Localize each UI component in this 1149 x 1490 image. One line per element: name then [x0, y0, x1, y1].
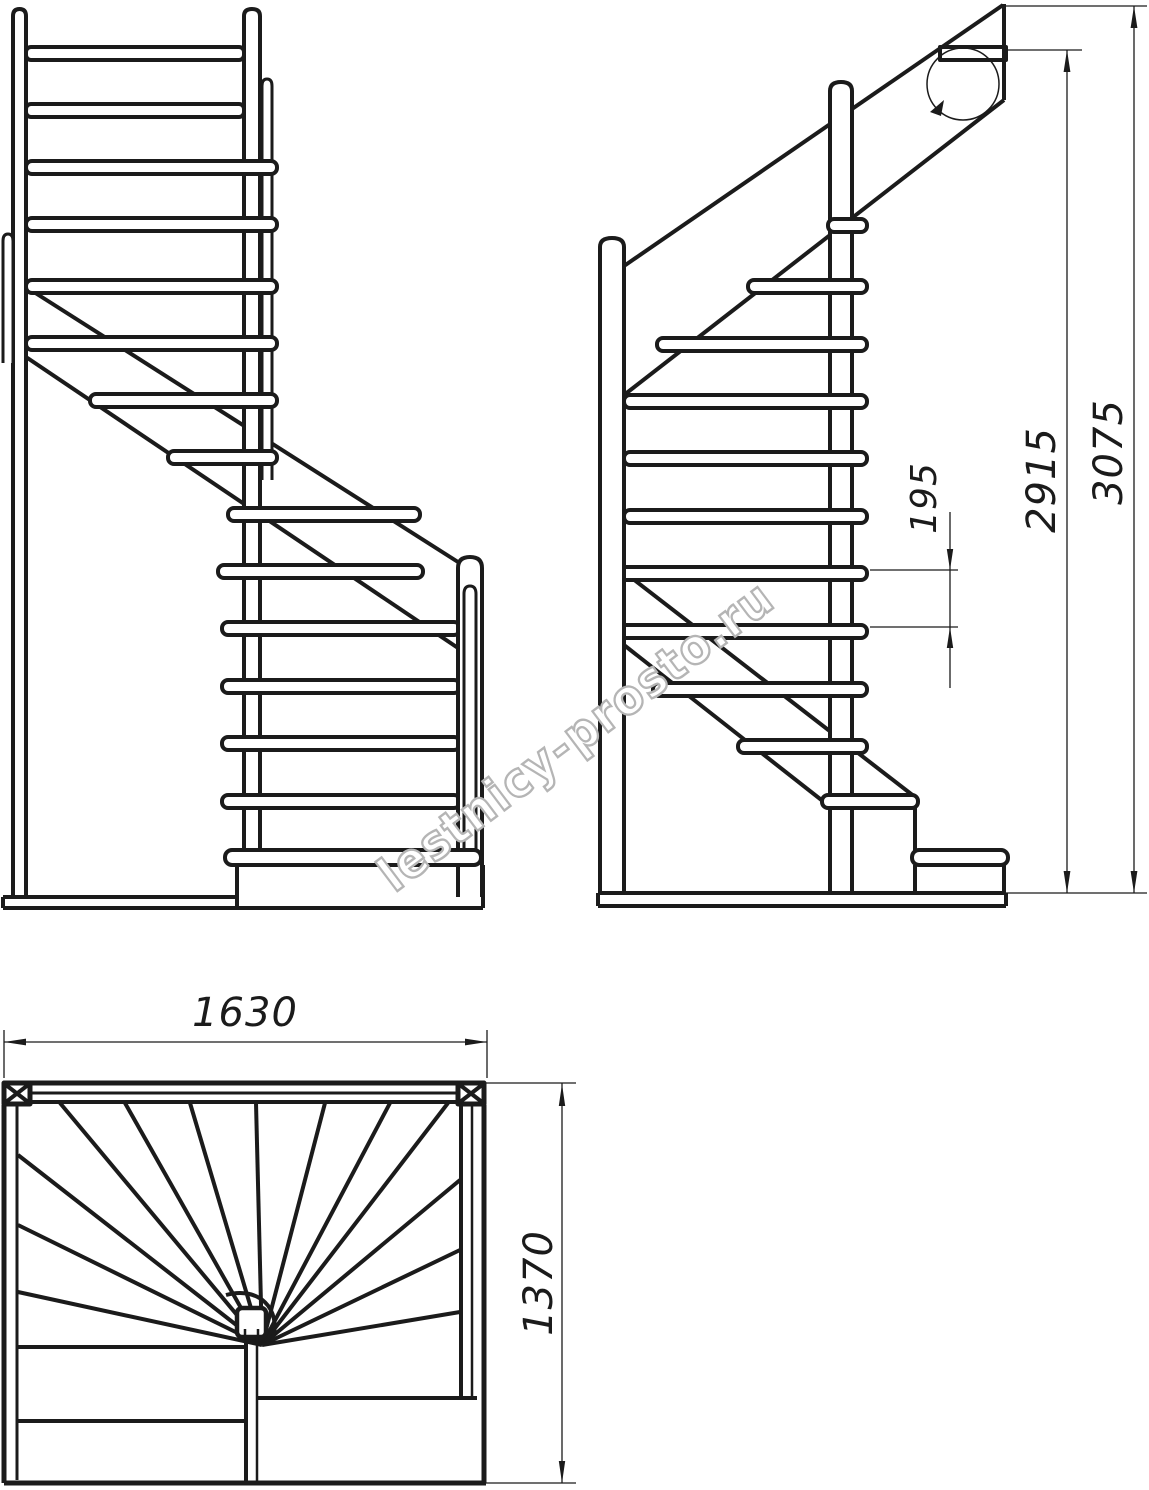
dimension-label-plan-depth: 1370 — [516, 1230, 562, 1336]
front-wall-bracket — [3, 234, 13, 363]
front-left-post — [13, 9, 26, 897]
plan-view — [4, 1083, 486, 1483]
dimension-label-riser: 195 — [904, 462, 945, 534]
tread — [168, 451, 277, 464]
dimension-label-total-height: 3075 — [1086, 399, 1132, 505]
front-center-post — [244, 9, 260, 855]
dimension-label-floor-height: 2915 — [1019, 427, 1065, 533]
dimension-riser-195: 195 — [870, 462, 958, 688]
side-left-post — [600, 238, 624, 895]
tread — [90, 394, 277, 407]
plan-straight-treads — [18, 1347, 460, 1421]
side-elevation-view — [598, 4, 1008, 906]
dimension-label-plan-width: 1630 — [192, 990, 298, 1036]
drawing-canvas: 195 2915 3075 — [0, 0, 1149, 1490]
floor-hatch — [940, 47, 1006, 60]
tread — [822, 795, 918, 808]
dimension-floor-2915: 2915 — [1006, 50, 1082, 893]
staircase-drawing: 195 2915 3075 — [0, 0, 1149, 1490]
tread — [222, 795, 460, 808]
tread — [228, 508, 420, 521]
dimension-width-1630: 1630 — [4, 990, 487, 1078]
side-floor — [598, 893, 1006, 906]
tread — [748, 280, 867, 293]
tread — [222, 622, 460, 635]
tread — [222, 737, 460, 750]
tread — [222, 680, 460, 693]
tread — [604, 567, 867, 580]
tread — [624, 452, 867, 465]
plan-center-rail — [246, 1337, 257, 1483]
tread — [26, 337, 277, 350]
plan-corner-post-right — [458, 1083, 484, 1104]
rail — [26, 104, 244, 117]
dimension-depth-1370: 1370 — [486, 1083, 576, 1483]
step-tread — [912, 850, 1008, 865]
rail — [26, 47, 244, 60]
tread — [26, 218, 277, 231]
side-treads — [604, 219, 918, 808]
tread — [624, 395, 867, 408]
tread — [26, 161, 277, 174]
tread — [218, 565, 423, 578]
side-first-step — [912, 808, 1008, 893]
tread — [828, 219, 867, 232]
front-elevation-view — [3, 9, 483, 908]
plan-center-post — [237, 1308, 266, 1337]
tread — [26, 280, 277, 293]
plan-corner-post-left — [4, 1083, 30, 1104]
tread — [738, 740, 867, 753]
side-center-post — [830, 82, 852, 895]
tread — [657, 338, 867, 351]
tread — [624, 510, 867, 523]
